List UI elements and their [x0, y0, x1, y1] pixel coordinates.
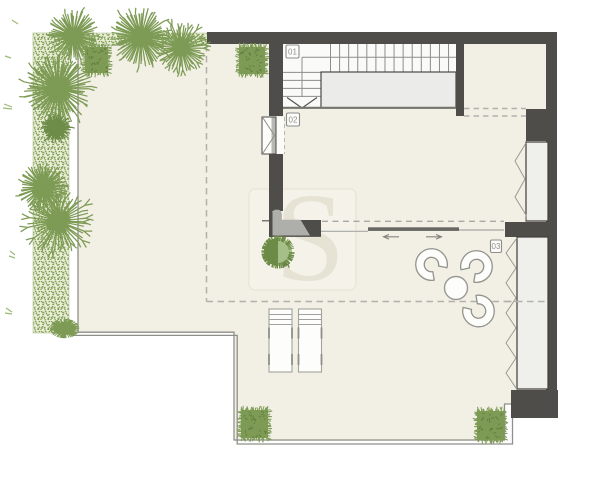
- svg-text:03: 03: [492, 242, 501, 251]
- svg-text:01: 01: [288, 47, 297, 56]
- svg-text:02: 02: [289, 115, 298, 124]
